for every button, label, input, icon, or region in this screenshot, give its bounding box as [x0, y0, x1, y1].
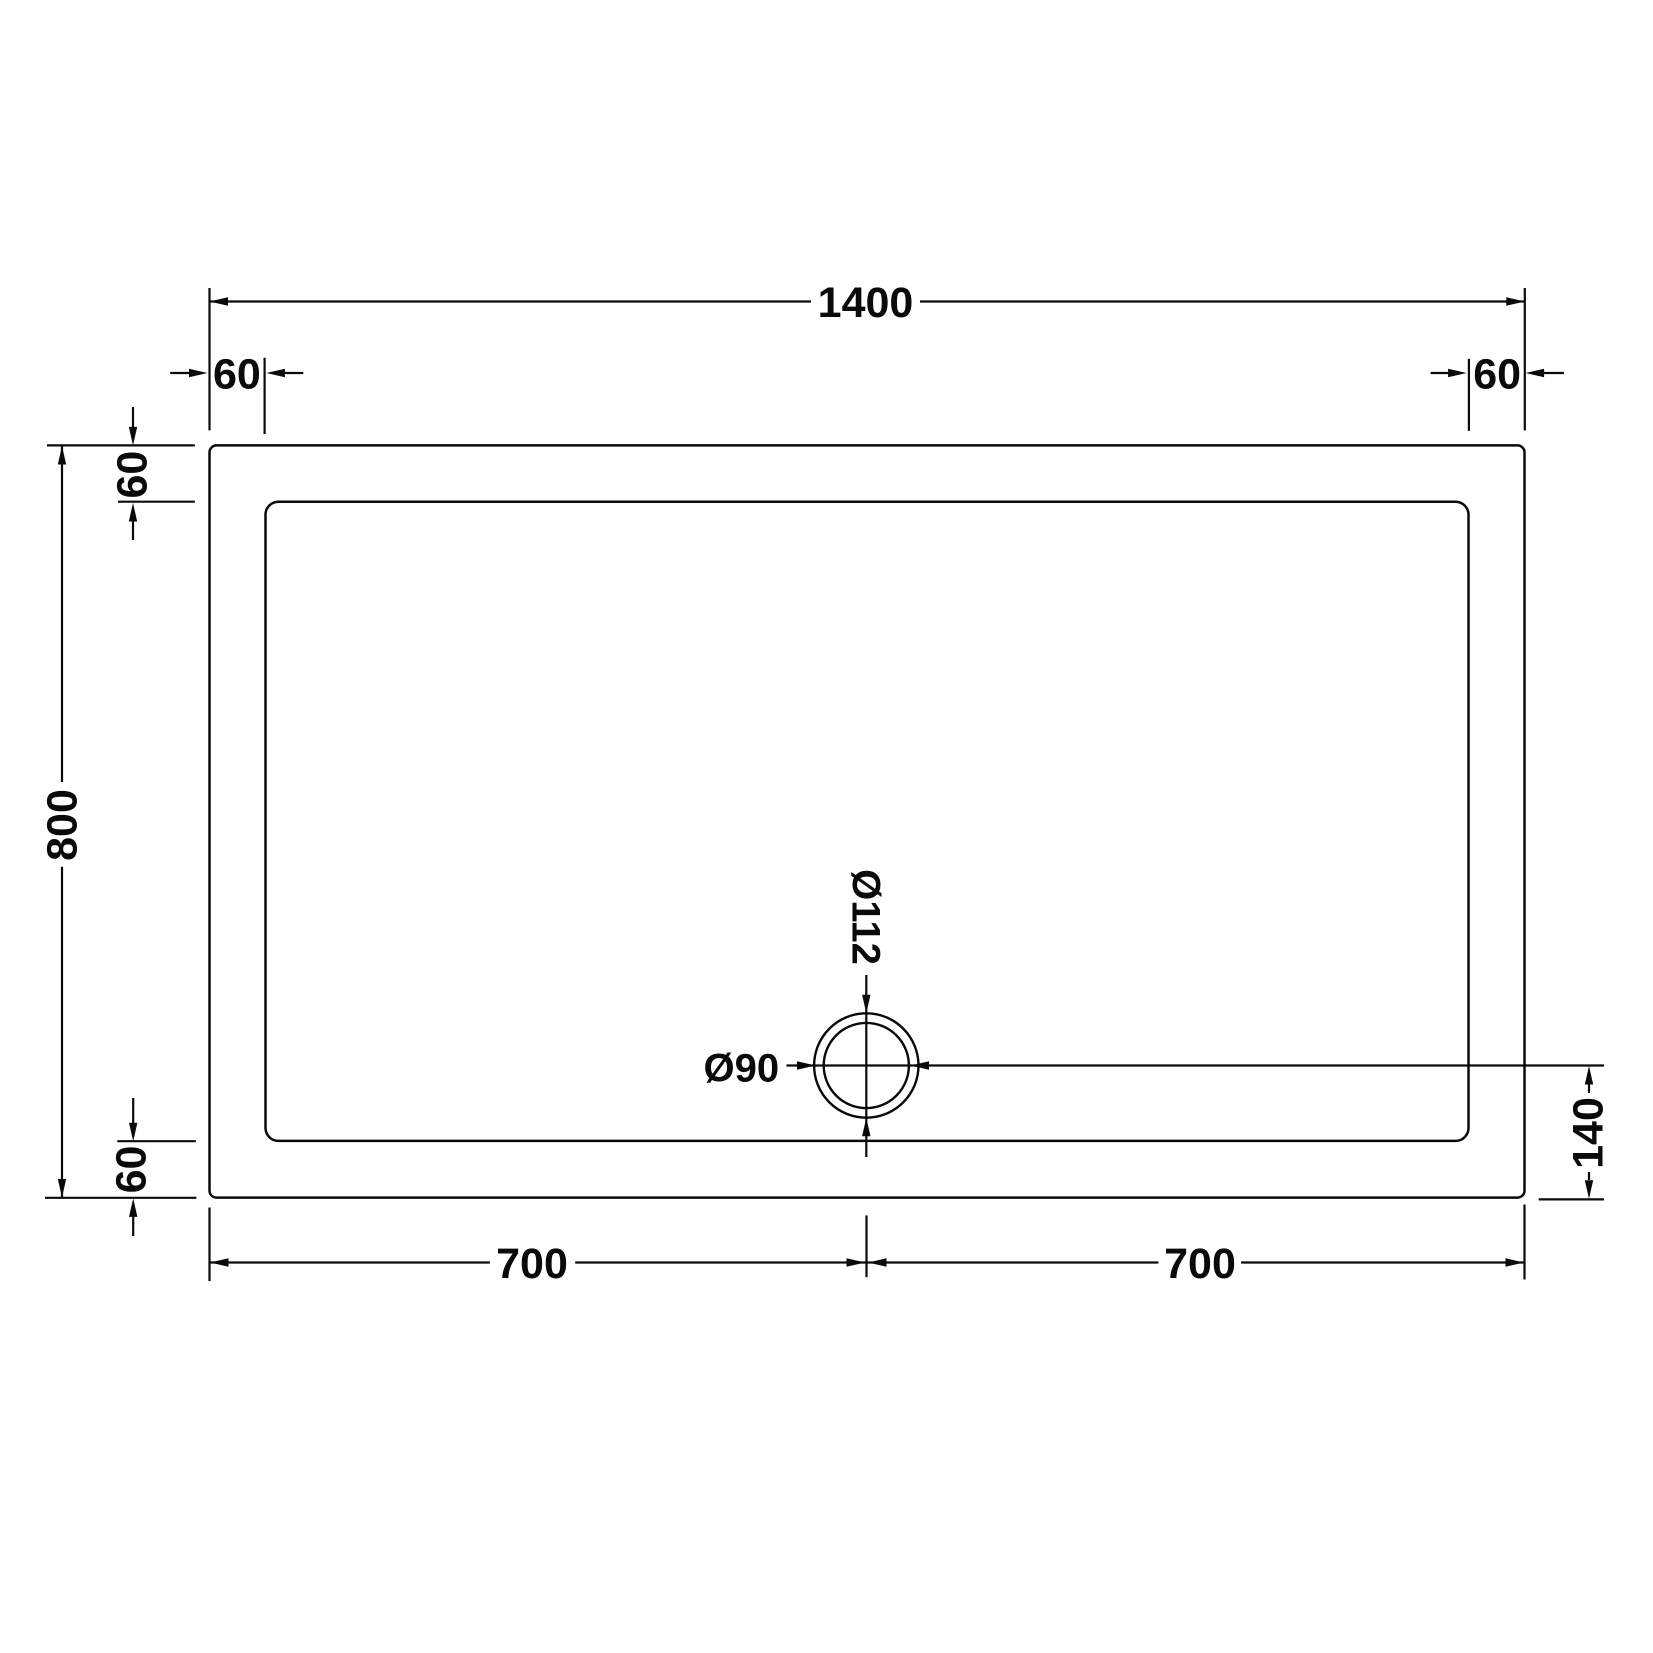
svg-text:140: 140	[1565, 1097, 1613, 1169]
svg-text:700: 700	[496, 1240, 568, 1288]
svg-text:800: 800	[39, 789, 87, 861]
svg-text:1400: 1400	[818, 279, 914, 327]
svg-text:Ø112: Ø112	[844, 869, 888, 965]
svg-text:60: 60	[108, 1146, 156, 1194]
svg-text:60: 60	[109, 451, 157, 499]
svg-text:60: 60	[213, 351, 261, 399]
svg-text:700: 700	[1164, 1240, 1236, 1288]
svg-text:60: 60	[1473, 351, 1521, 399]
svg-text:Ø90: Ø90	[703, 1047, 779, 1091]
